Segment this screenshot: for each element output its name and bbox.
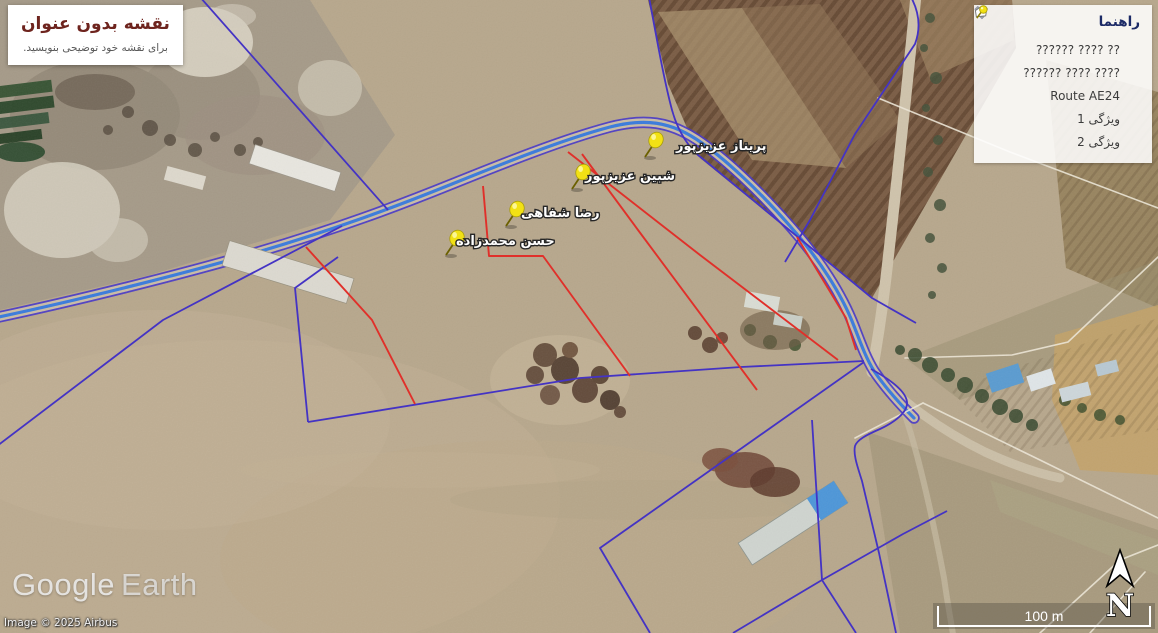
- legend-panel: راهنما ?? ???? ??????: [974, 5, 1152, 163]
- legend-item-route-ae24: Route AE24: [984, 84, 1142, 107]
- legend-item-layer-2: ???? ???? ??????: [984, 61, 1142, 84]
- map-title: نقشه بدون عنوان: [12, 14, 179, 34]
- layer-cluster-icon: [1126, 88, 1142, 104]
- map-subtitle: برای نقشه خود توضیحی بنویسید.: [12, 42, 179, 54]
- legend-item-feature-1: ویژگی 1: [984, 107, 1142, 130]
- google-earth-watermark: GoogleEarth: [12, 567, 198, 603]
- google-earth-map-view[interactable]: پریناز عزیزپور شبین عزیزپور رضا شفاهی حس…: [0, 0, 1158, 633]
- legend-item-layer-1: ?? ???? ??????: [984, 38, 1142, 61]
- watermark-earth: Earth: [121, 567, 198, 602]
- marker-label: پریناز عزیزپور: [675, 139, 767, 154]
- polygon-icon: [1126, 111, 1142, 127]
- marker-label: حسن محمدزاده: [456, 234, 555, 249]
- layer-cluster-icon: [1126, 65, 1142, 81]
- legend-item-feature-2: ویژگی 2: [984, 130, 1142, 153]
- watermark-google: Google: [12, 567, 115, 602]
- marker-label: شبین عزیزپور: [584, 169, 675, 184]
- marker-label: رضا شفاهی: [521, 206, 600, 221]
- scale-label: 100 m: [1025, 608, 1064, 624]
- legend-item-label: ویژگی 1: [1077, 112, 1120, 126]
- legend-item-label: Route AE24: [1050, 89, 1120, 103]
- legend-header: راهنما: [986, 14, 1140, 30]
- legend-item-label: ???? ???? ??????: [1023, 66, 1120, 80]
- north-label: N: [1106, 588, 1134, 624]
- copyright-text: Image © 2025 Airbus: [4, 617, 117, 629]
- map-title-box: نقشه بدون عنوان برای نقشه خود توضیحی بنو…: [8, 5, 183, 65]
- layer-cluster-icon: [1126, 42, 1142, 58]
- legend-item-label: ?? ???? ??????: [1036, 43, 1120, 57]
- legend-item-label: ویژگی 2: [1077, 135, 1120, 149]
- pushpin-icon: [1126, 134, 1142, 150]
